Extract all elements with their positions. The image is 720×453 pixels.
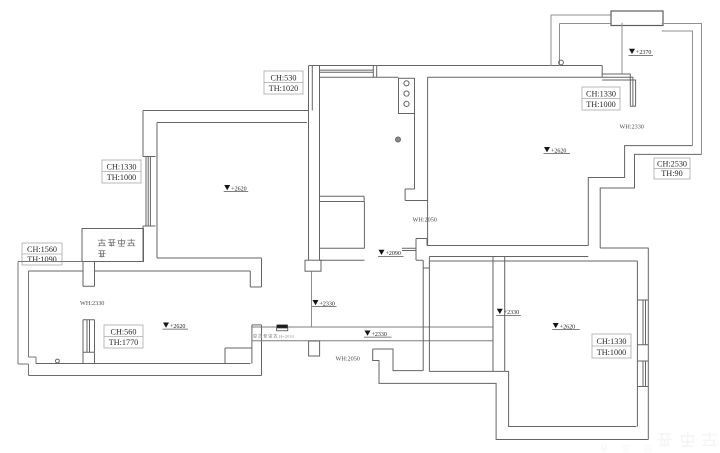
- svg-text:CH:1330: CH:1330: [586, 89, 616, 98]
- svg-text:WH:2330: WH:2330: [620, 124, 644, 131]
- svg-text:TH:1000: TH:1000: [107, 173, 137, 182]
- svg-text:WH:2330: WH:2330: [80, 300, 104, 307]
- svg-text:CH:530: CH:530: [271, 73, 297, 82]
- svg-text:CH:1560: CH:1560: [27, 245, 57, 254]
- svg-text:TH:1770: TH:1770: [109, 338, 139, 347]
- svg-text:WH:2050: WH:2050: [413, 216, 437, 223]
- svg-text:CH:2530: CH:2530: [657, 159, 687, 168]
- svg-text:WH:2050: WH:2050: [336, 356, 360, 363]
- svg-text:CH:560: CH:560: [111, 327, 137, 336]
- svg-text:H=2010: H=2010: [279, 334, 295, 339]
- svg-text:TH:90: TH:90: [661, 169, 682, 178]
- svg-text:TH:1000: TH:1000: [586, 100, 616, 109]
- svg-text:CH:1330: CH:1330: [106, 162, 136, 171]
- svg-text:TH:1020: TH:1020: [269, 84, 299, 93]
- svg-text:TH:1000: TH:1000: [597, 348, 627, 357]
- svg-text:CH:1330: CH:1330: [596, 337, 626, 346]
- svg-text:TH:1090: TH:1090: [27, 255, 57, 264]
